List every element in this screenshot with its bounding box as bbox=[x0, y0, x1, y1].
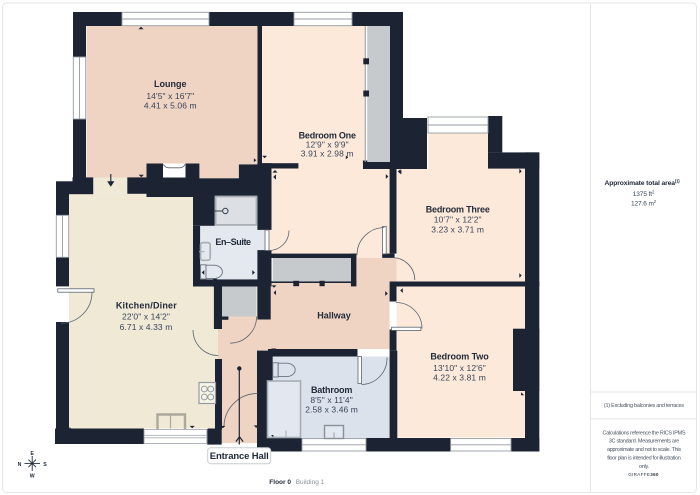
svg-text:S: S bbox=[43, 462, 47, 468]
svg-text:14'5" x 16'7": 14'5" x 16'7" bbox=[146, 91, 194, 101]
svg-text:13'10" x 12'6": 13'10" x 12'6" bbox=[433, 363, 486, 373]
svg-text:Bedroom Three: Bedroom Three bbox=[426, 205, 490, 215]
svg-text:N: N bbox=[18, 462, 22, 468]
svg-text:Building 1: Building 1 bbox=[296, 479, 325, 486]
svg-text:Kitchen/Diner: Kitchen/Diner bbox=[116, 301, 177, 311]
svg-text:Hallway: Hallway bbox=[317, 311, 351, 321]
svg-text:Bedroom Two: Bedroom Two bbox=[430, 351, 489, 361]
svg-text:Calculations reference the RIC: Calculations reference the RICS IPMS bbox=[603, 430, 686, 436]
svg-text:W: W bbox=[30, 474, 35, 480]
svg-text:Lounge: Lounge bbox=[154, 79, 187, 89]
svg-text:Bathroom: Bathroom bbox=[311, 385, 352, 395]
svg-text:(1) Excluding balconies and te: (1) Excluding balconies and terraces bbox=[604, 403, 684, 409]
svg-text:4.22 x 3.81 m: 4.22 x 3.81 m bbox=[433, 373, 486, 383]
svg-text:4.41 x 5.06 m: 4.41 x 5.06 m bbox=[144, 101, 197, 111]
svg-text:2.58 x 3.46 m: 2.58 x 3.46 m bbox=[305, 405, 358, 415]
svg-text:3C standard. Measurements are: 3C standard. Measurements are bbox=[609, 439, 679, 445]
svg-text:GIRAFFE360: GIRAFFE360 bbox=[628, 472, 659, 477]
svg-text:22'0" x 14'2": 22'0" x 14'2" bbox=[122, 312, 170, 322]
svg-text:3.91 x 2.98 m: 3.91 x 2.98 m bbox=[301, 148, 354, 158]
svg-text:E: E bbox=[30, 451, 34, 457]
svg-text:Approximate total area(1): Approximate total area(1) bbox=[604, 178, 680, 187]
svg-text:Floor 0: Floor 0 bbox=[269, 479, 291, 486]
svg-text:floor plan is intended for ill: floor plan is intended for illustration bbox=[607, 456, 681, 462]
svg-text:10'7" x 12'2": 10'7" x 12'2" bbox=[434, 215, 482, 225]
svg-text:6.71 x 4.33 m: 6.71 x 4.33 m bbox=[120, 322, 173, 332]
svg-text:127.6 m2: 127.6 m2 bbox=[631, 199, 657, 207]
svg-text:Entrance Hall: Entrance Hall bbox=[210, 451, 269, 462]
svg-text:only.: only. bbox=[639, 464, 649, 470]
svg-text:En–Suite: En–Suite bbox=[215, 237, 251, 247]
svg-text:approximate and not to scale.: approximate and not to scale. This bbox=[607, 447, 681, 453]
svg-text:1375 ft2: 1375 ft2 bbox=[633, 190, 655, 198]
svg-text:3.23 x 3.71 m: 3.23 x 3.71 m bbox=[431, 224, 484, 234]
